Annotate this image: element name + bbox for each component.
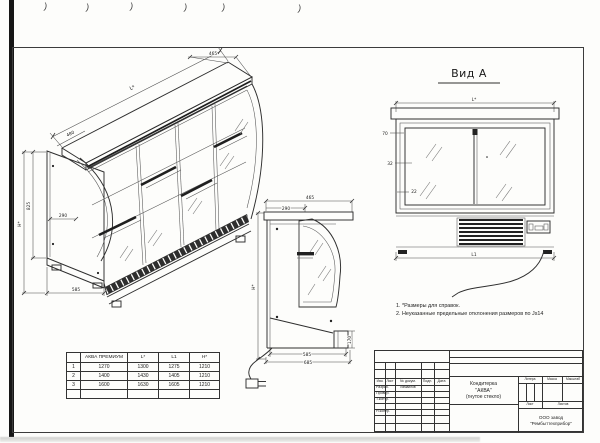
dim-label: L* <box>129 84 137 92</box>
dim-label: 585 <box>303 352 311 358</box>
title-block-line <box>375 423 449 424</box>
table-row: 1 1270 1300 1275 1210 <box>67 363 220 372</box>
title-block-line <box>518 383 584 384</box>
power-cord <box>249 348 272 379</box>
litera-header: Литера <box>518 376 542 383</box>
table-cell: 3 <box>67 381 81 390</box>
side-view: 465 290 <box>246 195 355 388</box>
designer-name: Измаилов <box>395 385 421 391</box>
glass-hatching <box>420 141 516 201</box>
dim-label: 585 <box>72 287 80 293</box>
table-cell: 1630 <box>128 381 159 390</box>
dim-label: 170 <box>347 336 353 344</box>
title-block: Изм. Лист № докум. Подп. Дата Разраб. Из… <box>374 350 583 432</box>
power-cord <box>452 250 544 297</box>
note-line: 1. *Размеры для справок. <box>396 302 566 310</box>
title-block-line <box>395 362 396 433</box>
dim-label: H* <box>251 283 257 289</box>
table-cell: 1600 <box>81 381 128 390</box>
note-line: 2. Неуказанные предельные отклонения раз… <box>396 310 566 318</box>
drawing-notes: 1. *Размеры для справок. 2. Неуказанные … <box>396 302 566 318</box>
control-panel <box>527 221 550 233</box>
table-cell: 1300 <box>128 363 159 372</box>
callout-label: 22 <box>411 189 417 195</box>
doc-title: Кондитерка "АКВА" (гнутое стекло) <box>449 378 518 404</box>
table-cell: 1210 <box>190 372 220 381</box>
company-name: ООО завод "Рембыттехприбор" <box>518 408 584 433</box>
revision-header: Лист <box>385 378 395 385</box>
spec-table: АКВА ПРЕМИУМ L* L1 H* 1 1270 1300 1275 1… <box>66 352 220 399</box>
curved-glass-profile <box>299 219 341 307</box>
title-block-line <box>421 362 422 433</box>
isometric-view: L* 465 480 <box>17 47 263 307</box>
table-cell: 1210 <box>190 381 220 390</box>
table-cell: 1605 <box>159 381 190 390</box>
role-label: Т.контр. <box>375 397 395 403</box>
revision-header: Подп. <box>421 378 434 385</box>
title-block-line <box>375 362 449 363</box>
front-view: Вид А L* <box>382 67 559 297</box>
sheets-label: Листов <box>542 401 584 408</box>
table-cell: 1405 <box>159 372 190 381</box>
table-cell <box>159 390 190 399</box>
table-header-cell: АКВА ПРЕМИУМ <box>81 353 128 363</box>
title-block-line <box>534 383 535 401</box>
title-block-line <box>434 362 435 433</box>
dim-label: H* <box>17 220 23 226</box>
revision-header: Дата <box>434 378 449 385</box>
dim-label: 685 <box>304 360 312 366</box>
dim-label: 290 <box>282 206 290 212</box>
table-header-cell <box>67 353 81 363</box>
table-cell <box>190 390 220 399</box>
table-header-row: АКВА ПРЕМИУМ L* L1 H* <box>67 353 220 363</box>
curved-end-glass <box>80 158 113 261</box>
dim-label: L* <box>472 97 477 103</box>
power-plug-icon <box>246 379 266 388</box>
dim-label: 465 <box>306 195 314 201</box>
title-block-line <box>449 363 584 364</box>
table-header-cell: H* <box>190 353 220 363</box>
scale-header: Масштаб <box>562 376 584 383</box>
louver-band <box>105 214 249 295</box>
drawing-sheet: ) ) ) ) ) ) L* 465 480 <box>0 0 600 443</box>
role-label: Н.контр. <box>375 409 395 415</box>
glass-hatching <box>308 240 331 295</box>
revision-header: Изм. <box>375 378 385 385</box>
scan-artifact-bottom-shadow <box>0 437 480 442</box>
dim-label: 480 <box>66 129 76 138</box>
callout-label: 32 <box>387 161 393 167</box>
title-block-line <box>449 404 518 405</box>
revision-header: № докум. <box>395 378 421 385</box>
dim-label: 290 <box>59 213 67 219</box>
title-block-line <box>375 415 449 416</box>
table-header-cell: L* <box>128 353 159 363</box>
callout-label: 70 <box>382 131 388 137</box>
dim-label: L1 <box>471 252 476 258</box>
table-cell <box>67 390 81 399</box>
mass-header: Масса <box>542 376 562 383</box>
table-cell: 1400 <box>81 372 128 381</box>
table-cell: 1 <box>67 363 81 372</box>
sheet-label: Лист <box>518 401 542 408</box>
ventilation-grille <box>459 219 523 245</box>
view-a-label: Вид А <box>451 67 487 80</box>
table-cell: 1275 <box>159 363 190 372</box>
doc-title-line: (гнутое стекло) <box>466 394 501 401</box>
table-cell: 1270 <box>81 363 128 372</box>
table-cell: 1210 <box>190 363 220 372</box>
table-cell: 1430 <box>128 372 159 381</box>
title-block-line <box>526 383 527 401</box>
table-cell <box>81 390 128 399</box>
table-cell: 2 <box>67 372 81 381</box>
title-block-line <box>449 357 584 358</box>
table-header-cell: L1 <box>159 353 190 363</box>
dim-label: 825 <box>26 202 32 210</box>
company-line: "Рембыттехприбор" <box>530 421 572 427</box>
title-block-line <box>375 369 449 370</box>
title-block-line <box>375 403 449 404</box>
table-row: 2 1400 1430 1405 1210 <box>67 372 220 381</box>
table-row: 3 1600 1630 1605 1210 <box>67 381 220 390</box>
dim-label: 465 <box>209 51 217 57</box>
table-row <box>67 390 220 399</box>
table-cell <box>128 390 159 399</box>
